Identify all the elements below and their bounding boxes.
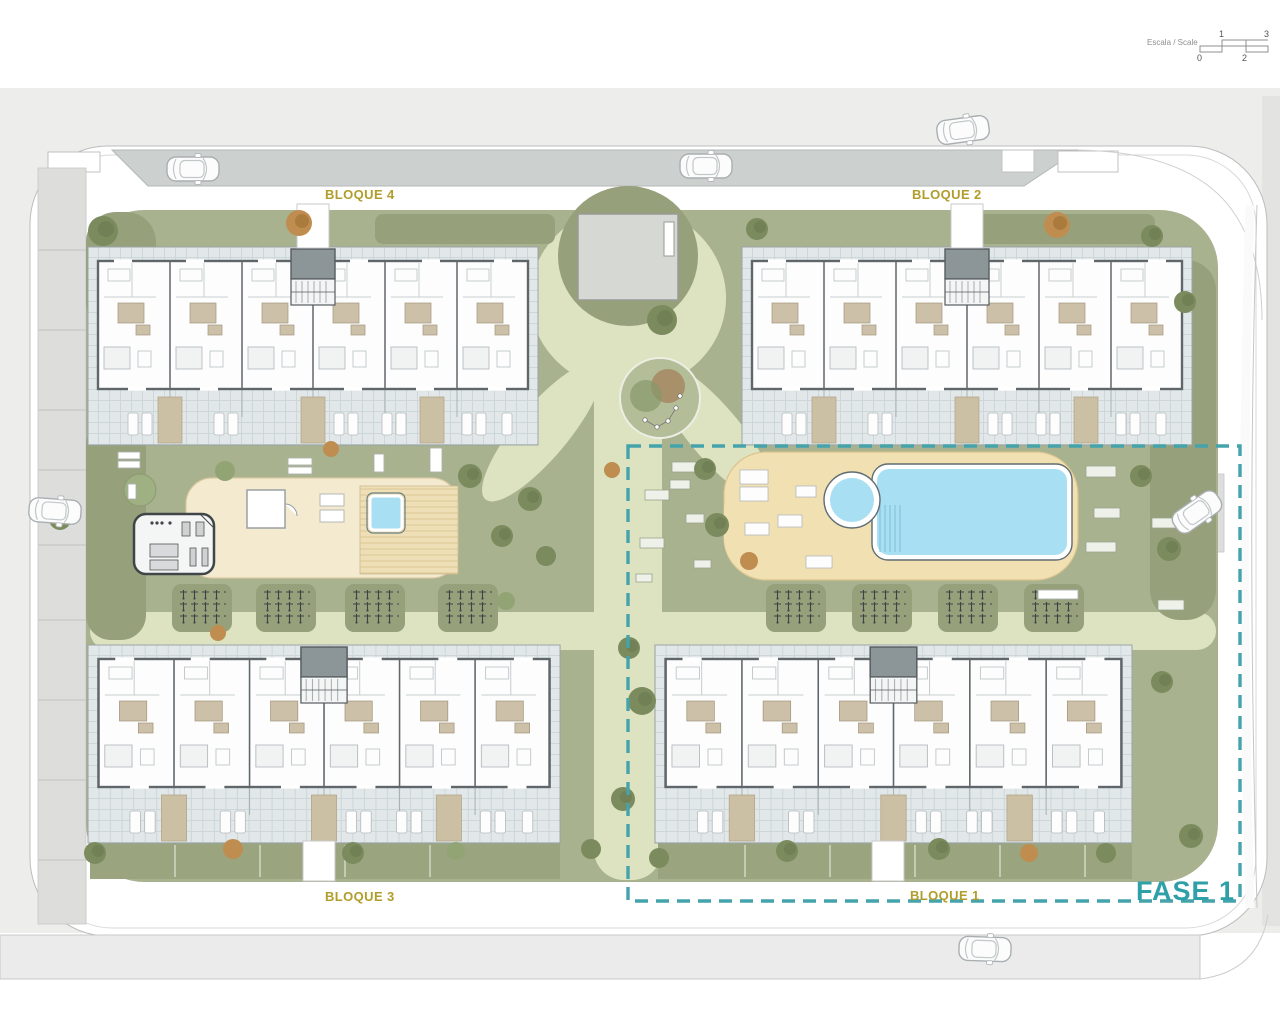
gym-building bbox=[134, 514, 214, 574]
utility-building bbox=[558, 186, 698, 326]
car-icon bbox=[167, 154, 219, 185]
car-icon bbox=[958, 933, 1011, 966]
main-pool bbox=[872, 464, 1072, 560]
building-bloque-2 bbox=[742, 247, 1192, 445]
deck-table bbox=[320, 510, 344, 522]
building-bloque-1 bbox=[655, 645, 1132, 843]
car-icon bbox=[680, 151, 732, 182]
parking-left bbox=[38, 168, 86, 924]
deck-table bbox=[320, 494, 344, 506]
scale-bar-graphic bbox=[1200, 40, 1268, 52]
kids-pool bbox=[824, 472, 880, 528]
plunge-pool bbox=[367, 493, 405, 533]
building-bloque-4 bbox=[88, 247, 538, 445]
sidewalk-right bbox=[1245, 205, 1250, 908]
building-bloque-3 bbox=[88, 645, 560, 843]
site-plan bbox=[0, 0, 1280, 1024]
playground bbox=[620, 358, 700, 438]
bench bbox=[1038, 590, 1078, 599]
